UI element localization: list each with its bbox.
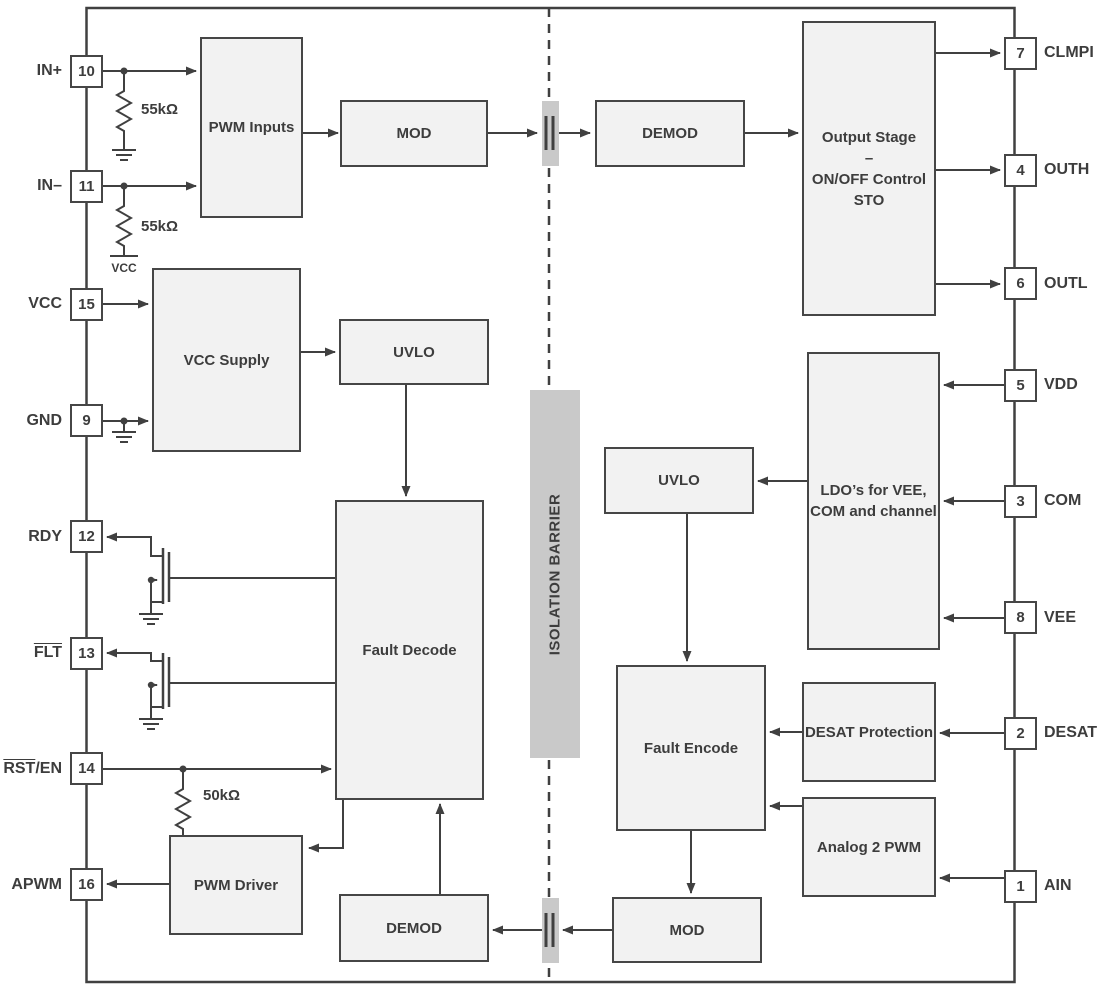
block-vcc-supply: VCC Supply	[152, 268, 301, 452]
block-label: PWM Inputs	[209, 117, 295, 138]
pin-number: 9	[82, 412, 90, 429]
pin-3: 3	[1004, 485, 1037, 518]
isolation-barrier: ISOLATION BARRIER	[530, 390, 580, 758]
pin-6: 6	[1004, 267, 1037, 300]
pin-label-bar: FLT	[34, 644, 62, 661]
pin-10: 10	[70, 55, 103, 88]
block-label: MOD	[397, 123, 432, 144]
pin-15: 15	[70, 288, 103, 321]
block-label: UVLO	[393, 342, 435, 363]
block-label: COM and channel	[810, 501, 937, 522]
block-label: STO	[854, 190, 885, 211]
block-uvlo-left: UVLO	[339, 319, 489, 385]
mosfet-icon-flt	[107, 653, 335, 729]
pin-label-text: RDY	[28, 528, 62, 545]
block-analog-2-pwm: Analog 2 PWM	[802, 797, 936, 897]
pin-label-gnd: GND	[0, 410, 62, 432]
vcc-rail-label: VCC	[100, 261, 148, 275]
pin-number: 2	[1016, 725, 1024, 742]
block-mod-bottom: MOD	[612, 897, 762, 963]
block-label: Fault Decode	[362, 640, 456, 661]
pin-number: 5	[1016, 377, 1024, 394]
pin-13: 13	[70, 637, 103, 670]
mosfet-icon-rdy	[107, 537, 335, 624]
pin-label-rst-en: RST/EN	[0, 758, 62, 780]
pin-label-flt: FLT	[0, 642, 62, 664]
block-label: LDO’s for VEE,	[820, 480, 926, 501]
pin-label-com: COM	[1044, 490, 1100, 512]
pin-5: 5	[1004, 369, 1037, 402]
pin-label-desat: DESAT	[1044, 722, 1100, 744]
pin-4: 4	[1004, 154, 1037, 187]
pin-14: 14	[70, 752, 103, 785]
pin-number: 12	[78, 528, 95, 545]
pin-label-text: GND	[26, 412, 62, 429]
block-label: Fault Encode	[644, 738, 738, 759]
pin-1: 1	[1004, 870, 1037, 903]
pin-label-apwm: APWM	[0, 874, 62, 896]
pin-number: 8	[1016, 609, 1024, 626]
pin-8: 8	[1004, 601, 1037, 634]
pin-9: 9	[70, 404, 103, 437]
block-pwm-inputs: PWM Inputs	[200, 37, 303, 218]
pin-number: 16	[78, 876, 95, 893]
block-pwm-driver: PWM Driver	[169, 835, 303, 935]
pin-number: 10	[78, 63, 95, 80]
pin-2: 2	[1004, 717, 1037, 750]
pin-label-text: IN+	[37, 62, 62, 79]
block-demod-bottom: DEMOD	[339, 894, 489, 962]
block-ldo: LDO’s for VEE, COM and channel	[807, 352, 940, 650]
pin-label-text: VCC	[28, 295, 62, 312]
pin-label-ain: AIN	[1044, 875, 1100, 897]
pin-number: 11	[79, 178, 95, 195]
block-label: PWM Driver	[194, 875, 278, 896]
resistor-value-in-minus: 55kΩ	[141, 216, 178, 238]
pin-11: 11	[70, 170, 103, 203]
pin-number: 3	[1016, 493, 1024, 510]
resistor-value-in-plus: 55kΩ	[141, 99, 178, 121]
block-label: MOD	[670, 920, 705, 941]
pin-number: 6	[1016, 275, 1024, 292]
pin-label-vee: VEE	[1044, 607, 1100, 629]
isolation-barrier-label: ISOLATION BARRIER	[547, 493, 564, 655]
pin-label-clmpi: CLMPI	[1044, 42, 1100, 64]
pin-label-bar: RST	[3, 760, 35, 777]
pin-label-outh: OUTH	[1044, 159, 1100, 181]
pin-label-in-plus: IN+	[0, 60, 62, 82]
pin-7: 7	[1004, 37, 1037, 70]
pin-label-rdy: RDY	[0, 526, 62, 548]
block-label: VCC Supply	[184, 350, 270, 371]
block-label: –	[865, 148, 873, 169]
block-label: DEMOD	[642, 123, 698, 144]
pin-label-text: APWM	[11, 876, 62, 893]
pin-number: 4	[1016, 162, 1024, 179]
pin-16: 16	[70, 868, 103, 901]
pin-label-text: IN–	[37, 177, 62, 194]
block-mod-top: MOD	[340, 100, 488, 167]
block-output-stage: Output Stage – ON/OFF Control STO	[802, 21, 936, 316]
pin-number: 13	[78, 645, 95, 662]
block-label: DESAT Protection	[805, 722, 933, 743]
pin-number: 14	[78, 760, 95, 777]
block-uvlo-right: UVLO	[604, 447, 754, 514]
pin-label-vdd: VDD	[1044, 374, 1100, 396]
resistor-in-plus-icon	[112, 71, 136, 160]
block-fault-decode: Fault Decode	[335, 500, 484, 800]
block-diagram: PWM Inputs MOD DEMOD Output Stage – ON/O…	[0, 0, 1100, 990]
pin-label-text: /EN	[35, 760, 62, 777]
pin-number: 1	[1016, 878, 1024, 895]
block-label: DEMOD	[386, 918, 442, 939]
pin-label-outl: OUTL	[1044, 273, 1100, 295]
resistor-value-rst: 50kΩ	[203, 785, 240, 807]
resistor-in-minus-icon	[110, 186, 138, 256]
pin-label-vcc: VCC	[0, 293, 62, 315]
block-label: ON/OFF Control	[812, 169, 926, 190]
block-label: Output Stage	[822, 127, 916, 148]
pin-number: 7	[1016, 45, 1024, 62]
pin-label-in-minus: IN–	[0, 175, 62, 197]
block-label: UVLO	[658, 470, 700, 491]
block-demod-top: DEMOD	[595, 100, 745, 167]
block-label: Analog 2 PWM	[817, 837, 921, 858]
block-desat-protection: DESAT Protection	[802, 682, 936, 782]
pin-12: 12	[70, 520, 103, 553]
pin-number: 15	[78, 296, 95, 313]
block-fault-encode: Fault Encode	[616, 665, 766, 831]
